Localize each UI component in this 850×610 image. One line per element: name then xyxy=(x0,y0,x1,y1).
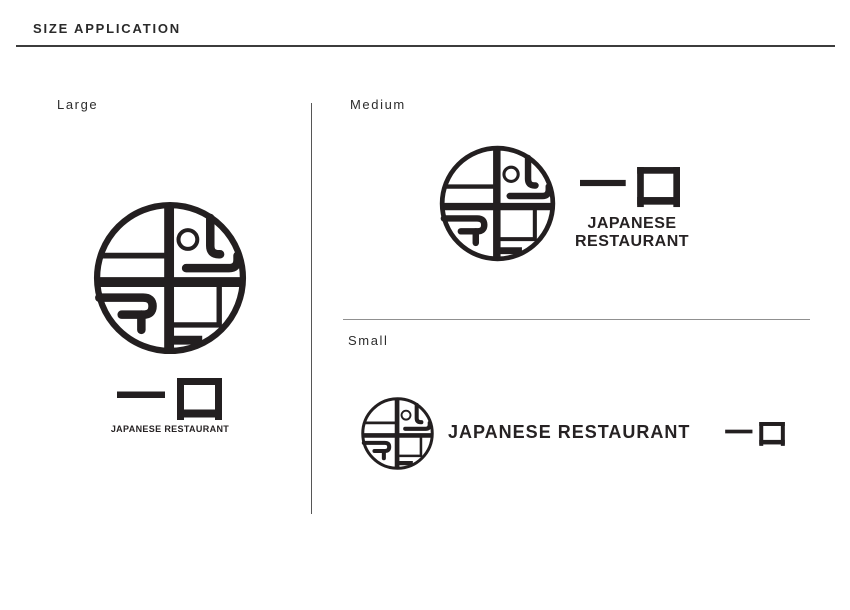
top-rule xyxy=(16,45,835,47)
tagline-medium-line2: RESTAURANT xyxy=(532,233,732,251)
bento-circle-logo-icon xyxy=(85,193,255,363)
section-label-medium: Medium xyxy=(350,97,406,112)
hitokuchi-kanji-mark-icon xyxy=(580,167,680,209)
vertical-divider xyxy=(311,103,312,514)
hitokuchi-kanji-mark-icon xyxy=(117,378,222,422)
section-label-small: Small xyxy=(348,333,389,348)
tagline-small: JAPANESE RESTAURANT xyxy=(448,423,690,441)
tagline-medium-line1: JAPANESE xyxy=(532,215,732,233)
tagline-large: JAPANESE RESTAURANT xyxy=(85,424,255,434)
tagline-medium: JAPANESE RESTAURANT xyxy=(532,215,732,250)
horizontal-divider xyxy=(343,319,810,320)
size-application-sheet: SIZE APPLICATION Large JAPANESE RESTAURA… xyxy=(0,0,850,610)
page-title: SIZE APPLICATION xyxy=(33,21,181,36)
bento-circle-logo-icon xyxy=(357,393,438,474)
section-label-large: Large xyxy=(57,97,98,112)
hitokuchi-kanji-mark-icon xyxy=(725,422,785,447)
